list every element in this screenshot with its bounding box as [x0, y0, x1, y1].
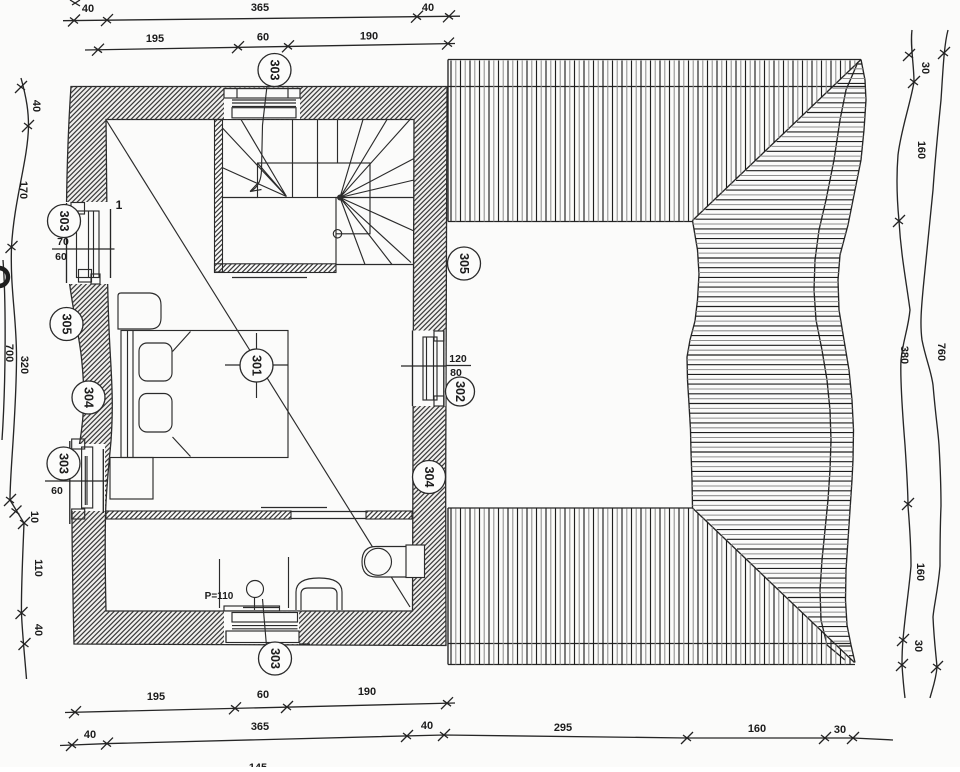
svg-text:190: 190	[358, 686, 376, 698]
svg-text:60: 60	[55, 251, 67, 263]
svg-text:195: 195	[147, 691, 165, 703]
svg-text:40: 40	[82, 3, 94, 15]
svg-text:380: 380	[898, 346, 910, 364]
svg-text:700: 700	[3, 344, 15, 362]
svg-text:302: 302	[453, 381, 467, 402]
svg-text:760: 760	[935, 343, 947, 361]
svg-text:1: 1	[116, 198, 123, 212]
svg-text:120: 120	[449, 353, 467, 365]
svg-text:110: 110	[32, 559, 44, 577]
svg-text:40: 40	[84, 729, 96, 741]
svg-text:40: 40	[422, 2, 434, 14]
svg-text:40: 40	[32, 624, 44, 636]
svg-text:60: 60	[257, 32, 269, 44]
svg-text:190: 190	[360, 31, 378, 43]
svg-text:305: 305	[60, 314, 74, 335]
svg-text:P=110: P=110	[205, 591, 234, 602]
svg-text:365: 365	[251, 721, 269, 733]
svg-text:305: 305	[457, 253, 471, 274]
svg-text:30: 30	[834, 724, 846, 736]
svg-text:10: 10	[28, 511, 40, 523]
svg-text:304: 304	[422, 467, 436, 488]
svg-text:303: 303	[57, 453, 71, 474]
svg-text:60: 60	[257, 689, 269, 701]
svg-text:40: 40	[421, 720, 433, 732]
svg-text:303: 303	[268, 648, 282, 669]
svg-text:295: 295	[554, 722, 572, 734]
svg-text:30: 30	[919, 62, 931, 74]
svg-text:70: 70	[57, 236, 69, 248]
svg-text:40: 40	[30, 100, 42, 112]
svg-text:320: 320	[18, 356, 30, 374]
svg-text:160: 160	[914, 563, 926, 581]
svg-text:303: 303	[57, 211, 71, 232]
svg-text:145: 145	[249, 762, 267, 767]
svg-text:195: 195	[146, 33, 164, 45]
svg-text:170: 170	[17, 181, 29, 199]
svg-text:160: 160	[748, 723, 766, 735]
svg-text:365: 365	[251, 2, 269, 14]
svg-text:30: 30	[912, 640, 924, 652]
svg-text:301: 301	[250, 355, 264, 376]
svg-text:160: 160	[915, 141, 927, 159]
svg-text:304: 304	[82, 387, 96, 408]
svg-text:60: 60	[51, 485, 63, 497]
svg-text:303: 303	[268, 60, 282, 81]
